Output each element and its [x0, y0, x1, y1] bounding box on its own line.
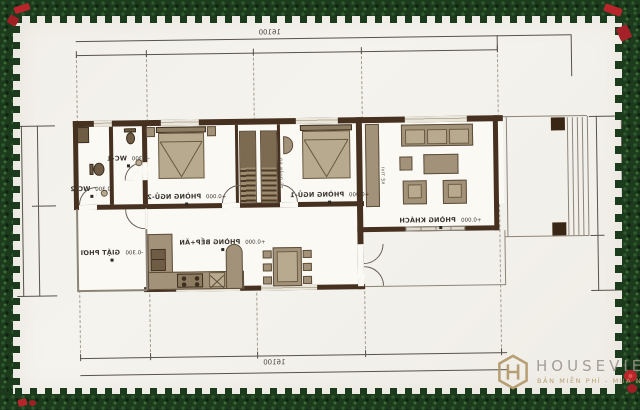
window: [296, 117, 338, 124]
side-table: [399, 156, 412, 170]
elevation-marker: [328, 201, 331, 204]
floor-plan-drawing: 16100 16100: [0, 0, 640, 410]
room-name-living: PHÒNG KHÁCH: [399, 217, 456, 225]
dim-tick: [80, 354, 81, 361]
room-label-living: PHÒNG KHÁCH +0.000: [399, 207, 481, 230]
coffee-table: [423, 154, 458, 174]
watermark-tagline: BẢN MIỄN PHÍ - MUA NHƯ Ý: [537, 377, 640, 385]
porch-column: [552, 222, 566, 235]
dim-tick: [32, 205, 56, 206]
dimension-line-top-inner: [76, 49, 498, 56]
garland-left: [0, 10, 13, 410]
bed2: [158, 132, 205, 179]
window: [94, 121, 112, 127]
dim-tick: [257, 352, 258, 359]
room-name-bedroom2: PHÒNG NGỦ-2: [147, 193, 201, 201]
room-label-bedroom2: PHÒNG NGỦ-2 +0.000: [147, 184, 227, 207]
dimension-line-right-inner: [596, 116, 599, 291]
room-elevation-kitchen: +0.000: [245, 239, 265, 246]
room-label-bedroom1: PHÒNG NGỦ-1 +0.000: [290, 182, 370, 205]
room-elevation-bedroom2: +0.000: [206, 194, 226, 201]
dimension-line-bottom: [80, 369, 507, 376]
nightstand: [146, 127, 155, 137]
window: [405, 116, 467, 123]
room-label-kitchen: PHÒNG BẾP+ĂN +0.000: [179, 229, 266, 252]
wardrobe-bedroom2: [239, 131, 257, 204]
bow-top-left-icon: [8, 2, 42, 28]
room-elevation-wc2: -0.300: [95, 187, 113, 194]
dimension-value-top: 16100: [258, 28, 280, 36]
door-gap: [79, 205, 97, 210]
stove-icon: [177, 273, 203, 287]
dining-chair: [263, 250, 272, 258]
sink-cross-pattern: [210, 275, 224, 288]
dimension-line-left-outer: [21, 126, 24, 297]
watermark-brand: HOUSEVIET: [536, 357, 640, 375]
dim-tick: [17, 295, 57, 297]
room-label-wc1: WC-1 -0.300: [107, 146, 150, 168]
room-name-kitchen: PHÒNG BẾP+ĂN: [179, 239, 240, 247]
porch-step: [587, 116, 590, 236]
room-elevation-bedroom1: +0.000: [349, 192, 369, 199]
dimension-extension: [571, 34, 573, 76]
toilet-icon-wc2: [93, 163, 104, 176]
door-arc-living-upper: [364, 244, 384, 264]
dining-chair: [303, 263, 312, 271]
bed1: [302, 130, 351, 179]
wall-laundry-bottom: [77, 289, 147, 292]
room-label-laundry: GIẶT PHƠI -0.300: [80, 240, 143, 262]
porch-edge-bottom: [505, 235, 588, 237]
terrace-edge-right: [504, 230, 506, 285]
houseviet-logo-icon: [496, 354, 530, 390]
porch-step: [577, 117, 580, 235]
washer-icon-wc2: [77, 127, 89, 143]
elevation-marker: [221, 248, 224, 251]
dim-tick: [146, 50, 147, 57]
dimension-line-left-inner: [37, 126, 40, 297]
garland-top: [0, 0, 640, 16]
dining-chair: [303, 250, 312, 258]
dim-tick: [150, 353, 151, 360]
bed2-blanket-pattern: [159, 133, 204, 178]
wardrobe-bedroom1: [260, 130, 278, 203]
window: [161, 119, 199, 126]
porch-column: [551, 117, 565, 130]
door-gap: [145, 209, 147, 229]
dim-tick: [76, 51, 77, 58]
watermark: HOUSEVIET BẢN MIỄN PHÍ - MUA NHƯ Ý: [496, 354, 626, 392]
garland-bottom: [0, 394, 640, 410]
dim-tick: [365, 350, 366, 357]
armchair-seat: [448, 184, 462, 198]
garland-edge: [13, 10, 20, 410]
dim-tick: [253, 49, 254, 56]
garland-edge: [0, 16, 640, 23]
sofa-cushion: [449, 129, 469, 144]
dim-tick: [497, 45, 498, 52]
armchair-seat: [408, 184, 422, 198]
dining-table-top: [277, 251, 298, 282]
porch-edge-inner: [506, 117, 509, 236]
tv-shelf-label: KỆ TIVI: [380, 154, 385, 184]
porch-step: [582, 117, 585, 235]
floor-plan-sheet: 16100 16100: [0, 0, 640, 410]
elevation-marker: [439, 226, 442, 229]
fridge-icon: [151, 249, 166, 271]
porch-edge-top: [498, 115, 587, 117]
elevation-marker: [185, 203, 188, 206]
dim-tick: [361, 47, 362, 54]
garland-edge: [615, 10, 622, 410]
sofa-cushion: [405, 129, 425, 144]
porch-step: [567, 117, 570, 235]
bow-top-right-icon: [596, 4, 636, 54]
room-name-wc1: WC-1: [107, 155, 127, 163]
elevation-marker: [110, 259, 113, 262]
dining-chair: [303, 276, 312, 284]
door-arc-living-lower: [364, 266, 384, 286]
room-name-laundry: GIẶT PHƠI: [80, 250, 120, 258]
room-name-bedroom1: PHÒNG NGỦ-1: [290, 191, 344, 199]
elevation-marker: [90, 195, 93, 198]
dim-tick: [15, 125, 55, 127]
room-elevation-wc1: -0.300: [132, 156, 150, 163]
dining-chair: [263, 263, 272, 271]
room-label-wc2: WC-2 -0.300: [70, 177, 113, 199]
sink-icon-kitchen: [209, 272, 225, 287]
bed1-blanket-pattern: [303, 131, 350, 178]
dining-chair: [263, 276, 272, 284]
toilet-icon-wc1: [126, 132, 135, 144]
room-elevation-living: +0.000: [461, 217, 481, 224]
garland-right: [622, 10, 640, 410]
berry-bottom-left-icon: [18, 398, 38, 408]
nightstand: [207, 126, 216, 136]
terrace-edge-bottom: [364, 284, 506, 287]
room-elevation-laundry: -0.300: [125, 250, 143, 257]
elevation-marker: [127, 165, 130, 168]
dimension-value-bottom: 16100: [263, 358, 285, 366]
room-name-wc2: WC-2: [70, 186, 90, 194]
porch-step: [572, 117, 575, 235]
sofa-cushion: [427, 129, 447, 144]
dim-tick: [590, 235, 604, 236]
